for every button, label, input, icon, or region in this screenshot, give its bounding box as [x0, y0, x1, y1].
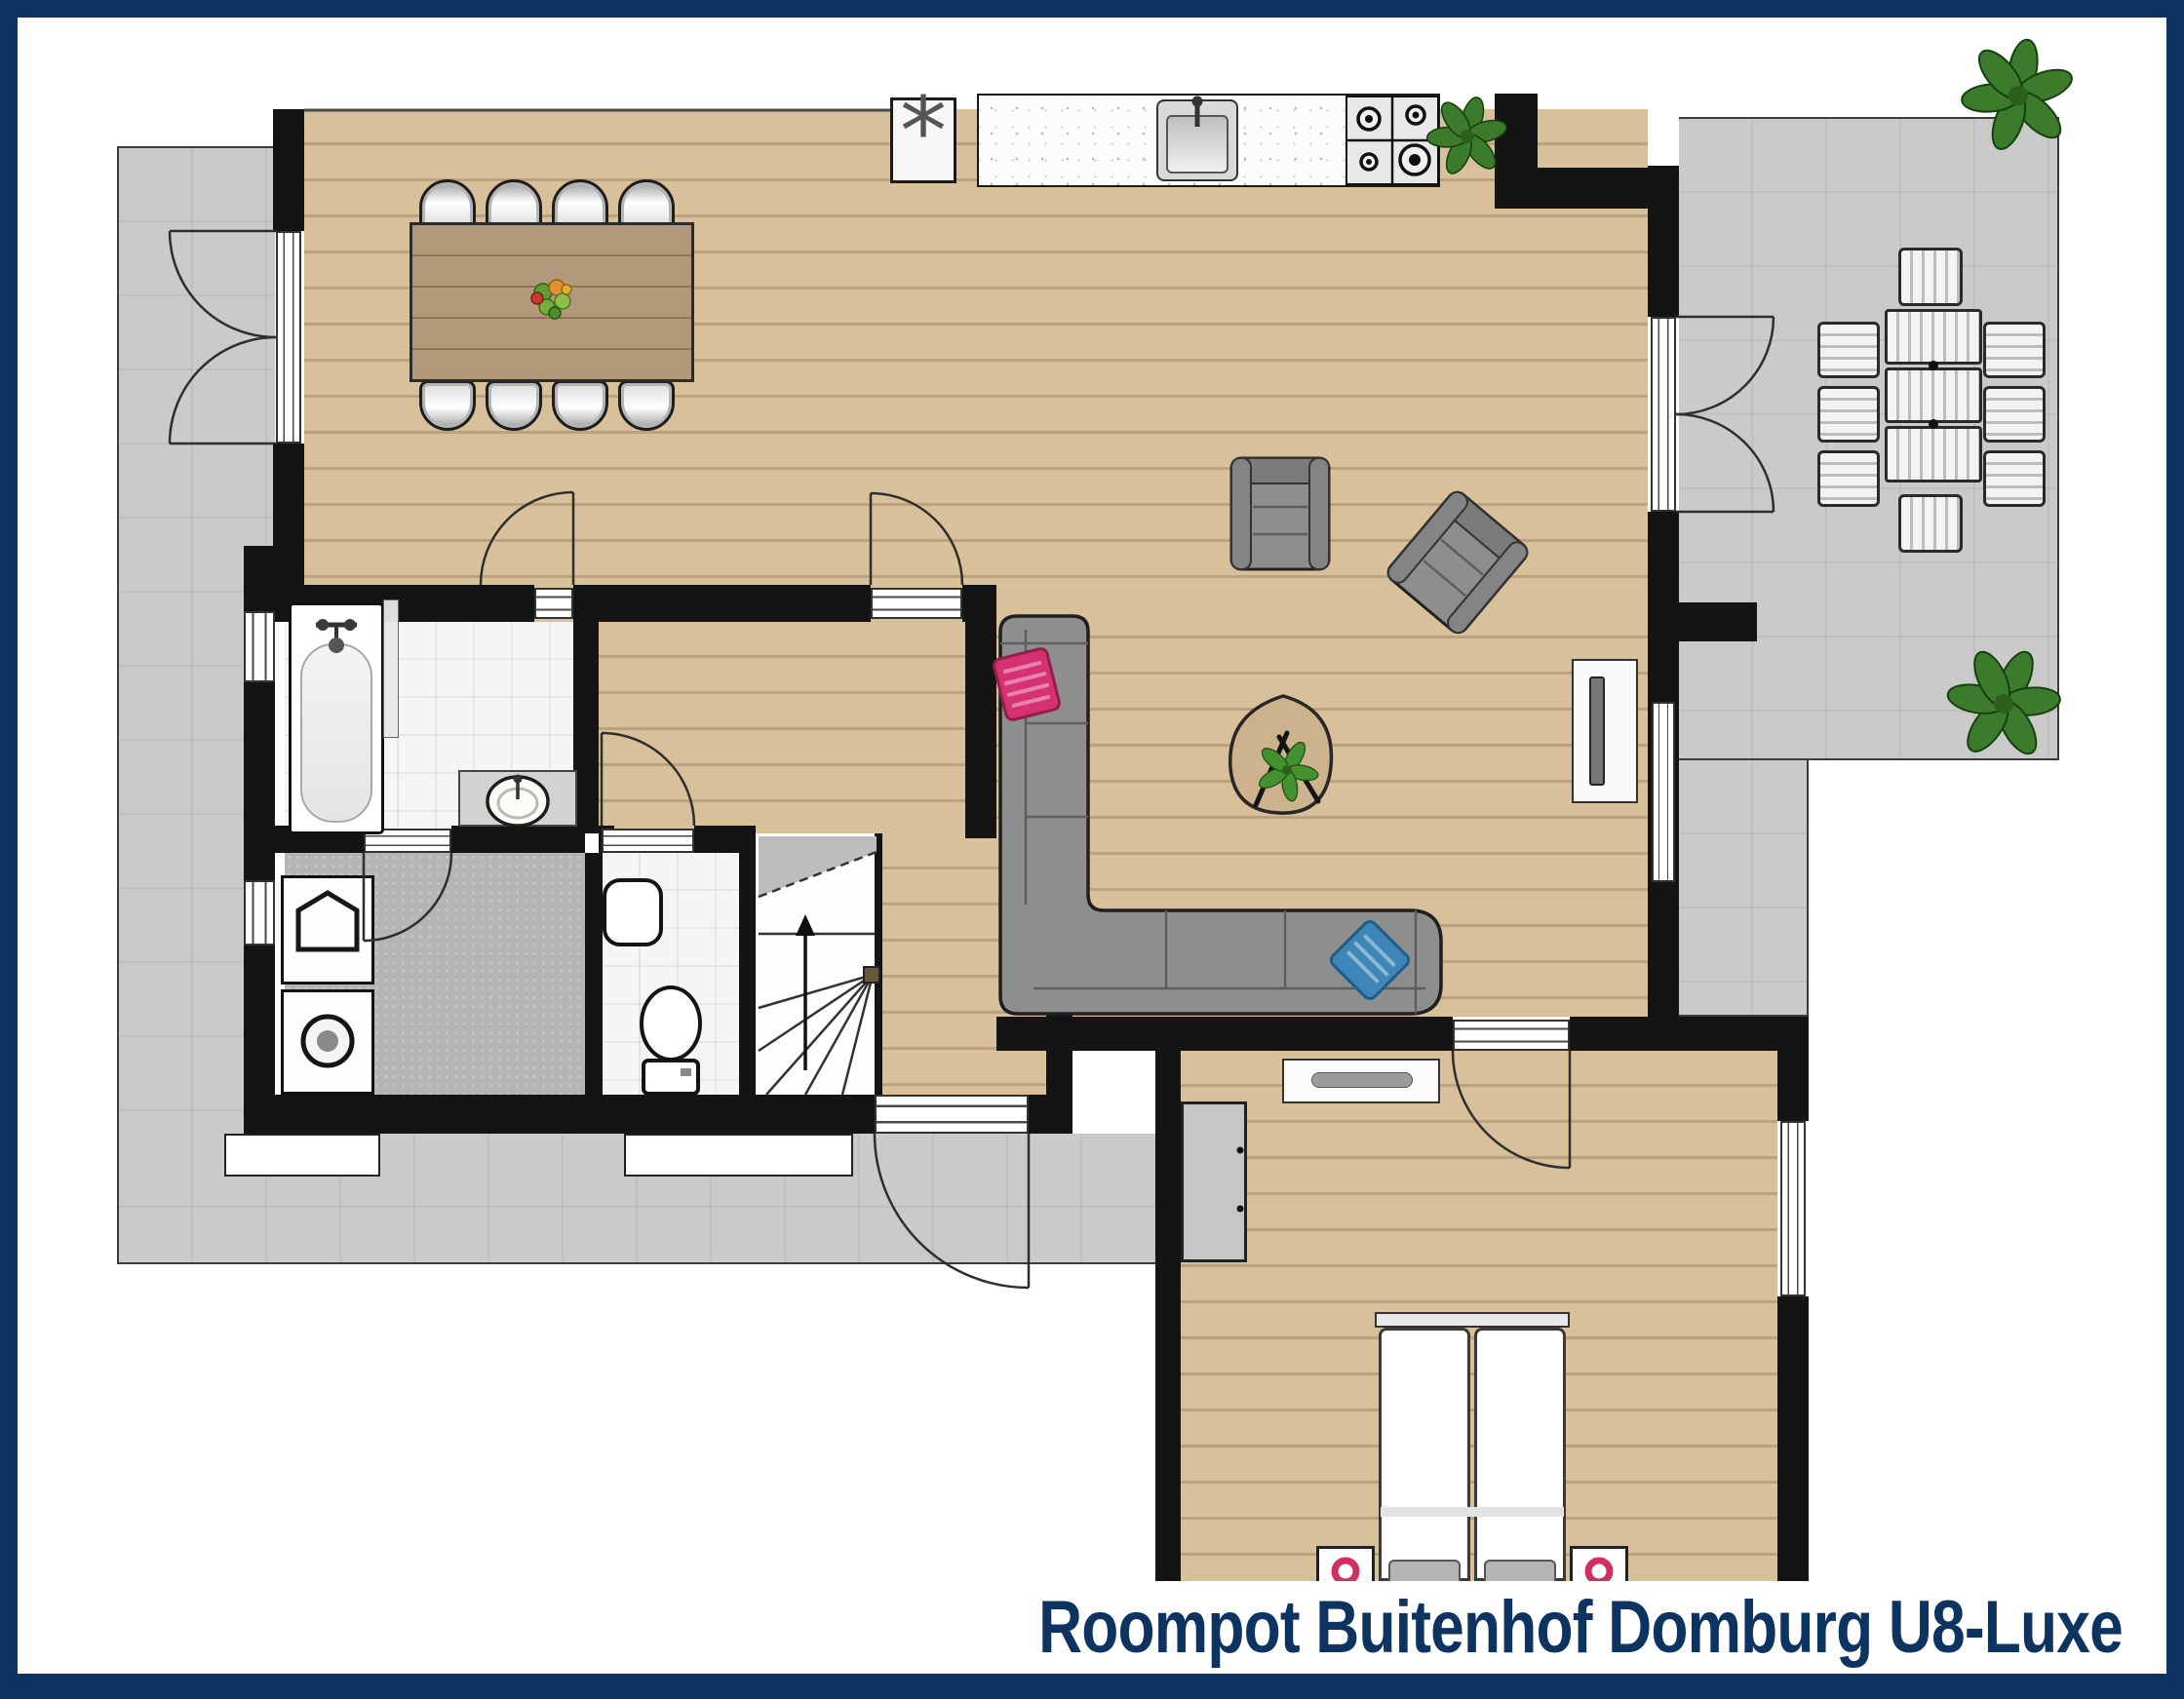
wall-segment: [1155, 1051, 1181, 1581]
wall-segment: [694, 826, 756, 853]
outdoor-chair-icon: [1898, 494, 1963, 553]
wall-segment: [1679, 602, 1757, 641]
dining-table-icon: [409, 222, 694, 382]
door-frame: [1453, 1020, 1570, 1051]
wall-segment: [996, 1017, 1453, 1051]
wall-segment: [875, 833, 882, 1095]
title-band: Roompot Buitenhof Domburg U8-Luxe: [18, 1581, 2166, 1674]
washbasin-cabinet: [458, 770, 577, 827]
outdoor-table-icon: [1885, 367, 1982, 423]
outdoor-chair-icon: [1817, 386, 1880, 443]
tv-icon: [1589, 676, 1605, 786]
bed-headboard: [1375, 1312, 1570, 1328]
tile-floor-toilet: [603, 853, 739, 1095]
wall-segment: [585, 853, 603, 1095]
wall-segment: [273, 109, 304, 231]
wall-segment: [1046, 833, 1072, 1134]
border-left: [0, 0, 18, 1699]
outdoor-chair-icon: [1983, 386, 2046, 443]
wall-segment: [1570, 1017, 1777, 1051]
freezer-icon: [890, 97, 956, 183]
wall-segment: [965, 585, 996, 838]
window-frame: [1652, 702, 1675, 882]
page-title: Roompot Buitenhof Domburg U8-Luxe: [1038, 1581, 2123, 1674]
double-bed-icon: [1474, 1328, 1566, 1581]
wardrobe-icon: [1181, 1101, 1247, 1262]
door-frame: [875, 1095, 1029, 1134]
window-frame: [244, 611, 275, 682]
door-frame: [1651, 317, 1676, 512]
wall-segment: [573, 585, 871, 622]
shower-screen-icon: [383, 599, 399, 738]
terrace-right-strip: [1679, 760, 1809, 1017]
window-sill: [624, 1134, 853, 1177]
outdoor-chair-icon: [1817, 322, 1880, 378]
duvet-fold: [1381, 1507, 1564, 1517]
door-frame: [602, 829, 694, 853]
border-top: [0, 0, 2184, 18]
wood-floor-corridor: [880, 833, 1046, 1095]
wall-segment: [1777, 1017, 1809, 1121]
wall-segment: [244, 682, 275, 880]
bathtub-basin: [300, 643, 372, 823]
stairs-floor: [756, 833, 875, 1095]
washing-machine-icon: [281, 989, 374, 1095]
door-frame: [276, 231, 301, 444]
gas-stove-icon: [1345, 96, 1439, 185]
wall-segment: [1495, 168, 1679, 209]
wall-segment: [451, 826, 585, 853]
outdoor-chair-icon: [1983, 322, 2046, 378]
wall-segment: [1777, 1296, 1809, 1581]
door-frame: [534, 588, 573, 619]
kitchen-sink-basin: [1166, 115, 1228, 174]
outdoor-table-icon: [1885, 309, 1982, 365]
wall-segment: [1029, 1095, 1072, 1134]
tv-cabinet-icon: [1572, 659, 1638, 803]
outdoor-chair-icon: [1898, 248, 1963, 306]
border-right: [2166, 0, 2184, 1699]
window-frame: [1780, 1121, 1806, 1296]
border-bottom: [0, 1674, 2184, 1699]
wood-floor-hall: [599, 622, 965, 833]
floor-plan: *: [0, 0, 2184, 1699]
outdoor-chair-icon: [1817, 450, 1880, 507]
outdoor-chair-icon: [1983, 450, 2046, 507]
wall-segment: [244, 585, 275, 611]
wall-segment: [739, 853, 756, 1095]
window-frame: [244, 880, 275, 946]
door-frame: [871, 588, 962, 619]
wood-floor-living: [996, 602, 1648, 1017]
wall-segment: [273, 444, 304, 585]
boiler-icon: [281, 875, 374, 985]
sideboard-tv: [1311, 1072, 1413, 1088]
double-bed-icon: [1379, 1328, 1470, 1581]
window-sill: [224, 1134, 380, 1177]
wall-segment: [244, 1095, 875, 1134]
outdoor-table-icon: [1885, 426, 1982, 483]
